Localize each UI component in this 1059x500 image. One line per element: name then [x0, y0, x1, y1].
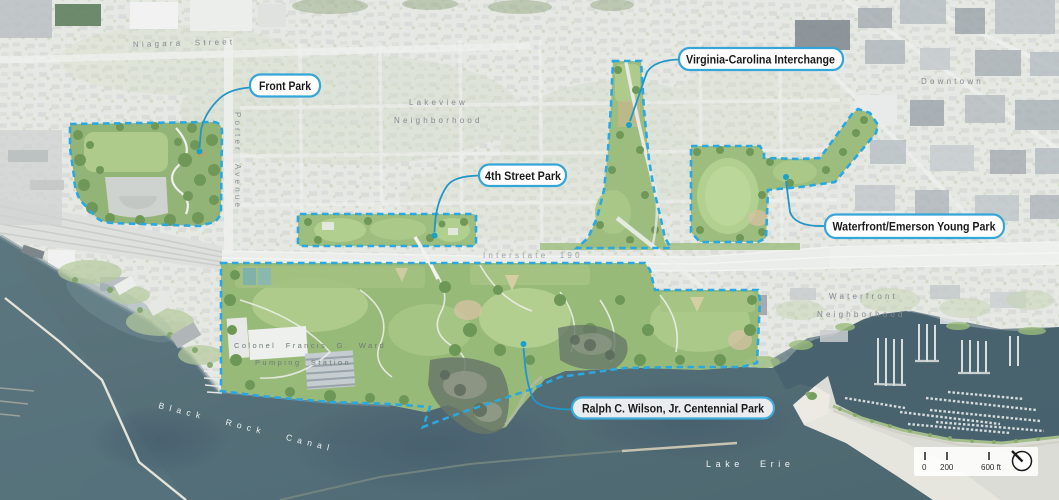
svg-text:600 ft: 600 ft [981, 463, 1002, 472]
svg-text:Lake Erie: Lake Erie [706, 459, 794, 469]
svg-text:Downtown: Downtown [921, 77, 984, 86]
svg-text:Waterfront: Waterfront [829, 292, 898, 301]
svg-text:0: 0 [922, 463, 927, 472]
svg-text:200: 200 [940, 463, 954, 472]
svg-text:Pumping Station: Pumping Station [255, 358, 351, 367]
svg-text:Neighborhood: Neighborhood [394, 116, 483, 125]
svg-text:Lakeview: Lakeview [409, 98, 468, 107]
svg-text:Waterfront/Emerson Young Park: Waterfront/Emerson Young Park [833, 220, 996, 234]
svg-text:Front Park: Front Park [259, 79, 311, 93]
svg-text:Porter Avenue: Porter Avenue [233, 112, 242, 210]
svg-text:Neighborhood: Neighborhood [817, 310, 906, 319]
svg-text:Ralph C. Wilson, Jr. Centennia: Ralph C. Wilson, Jr. Centennial Park [582, 402, 764, 416]
svg-text:4th Street Park: 4th Street Park [485, 169, 561, 183]
svg-text:Interstate 190: Interstate 190 [483, 251, 583, 260]
svg-text:Virginia-Carolina Interchange: Virginia-Carolina Interchange [686, 53, 835, 67]
svg-text:Colonel Francis G. Ward: Colonel Francis G. Ward [234, 341, 386, 350]
